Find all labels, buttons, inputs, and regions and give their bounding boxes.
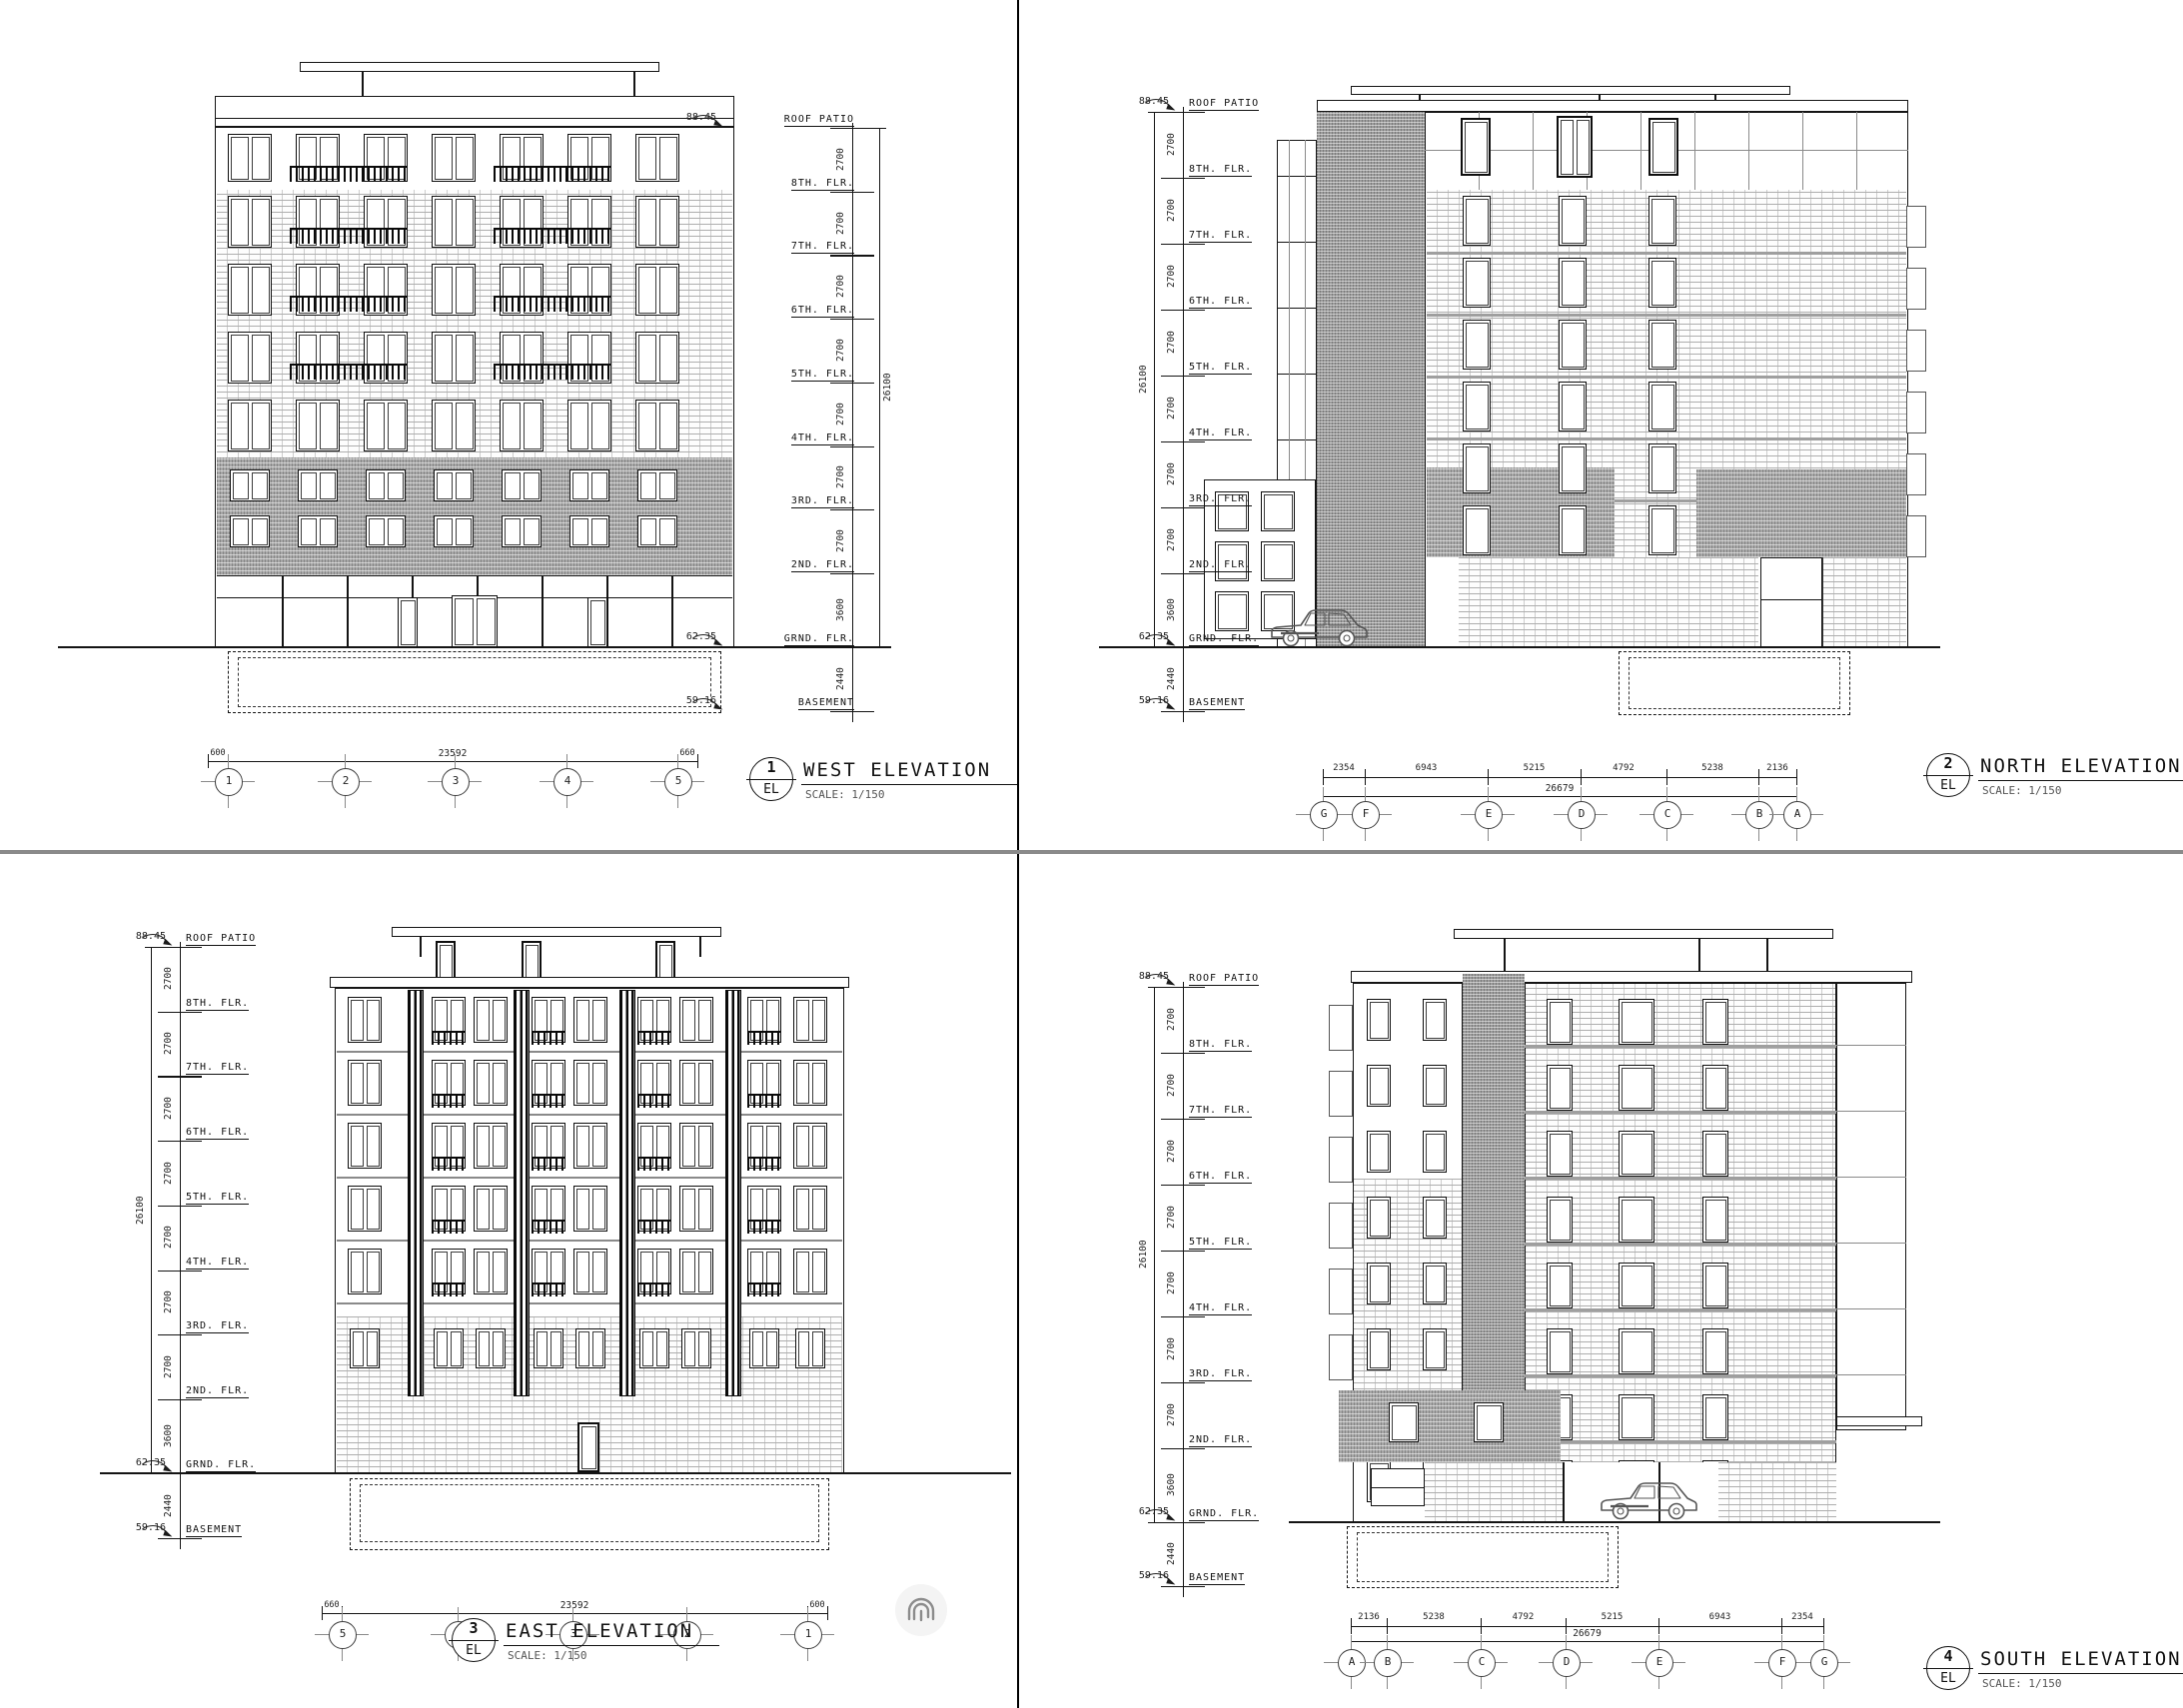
window-pane <box>796 1063 809 1104</box>
window-pane <box>682 1126 695 1167</box>
window-pane <box>1465 122 1488 173</box>
window <box>679 1249 713 1294</box>
level-tick <box>1161 711 1205 712</box>
quadrant-divider-horizontal <box>0 850 2183 854</box>
overall-level-dim: 26100 <box>882 366 895 410</box>
overall-dim-tick <box>873 128 886 129</box>
window-pane <box>493 1331 504 1366</box>
grid-bubble: 5 <box>664 768 692 796</box>
overall-dim-tick <box>1148 1522 1161 1523</box>
overall-dim: 26679 <box>1323 783 1796 794</box>
window-pane <box>493 1000 506 1041</box>
panel-joint <box>1694 112 1695 190</box>
storefront-mullion <box>542 575 544 647</box>
level-dimension: 3600 <box>835 590 848 630</box>
window-pane <box>320 472 336 499</box>
window-pane <box>576 1126 589 1167</box>
south-right-canopy <box>1836 1416 1922 1426</box>
balcony-railing <box>532 1031 565 1045</box>
overall-level-dim: 26100 <box>135 1189 148 1233</box>
window <box>635 332 679 384</box>
window-pane <box>1577 120 1590 175</box>
window <box>348 1249 382 1294</box>
window-pane <box>1466 508 1489 553</box>
window-pane <box>572 518 588 545</box>
window <box>474 1123 508 1169</box>
window <box>573 1186 607 1232</box>
window-pane <box>367 1252 380 1292</box>
door-mid-line <box>1371 1487 1425 1488</box>
window-pane <box>572 472 588 499</box>
window-pane <box>437 1331 448 1366</box>
window-pane <box>233 472 249 499</box>
window-pane <box>812 1063 825 1104</box>
grid-bubble: E <box>1645 1649 1673 1677</box>
window <box>434 515 474 547</box>
window <box>793 1123 827 1169</box>
segment-dim: 5238 <box>1666 763 1758 774</box>
view-number: 2 <box>1934 754 1962 770</box>
window-pane <box>1550 1134 1571 1175</box>
overall-dim-tick <box>873 647 886 648</box>
window <box>228 264 272 316</box>
window-pane <box>659 137 677 180</box>
window <box>573 997 607 1043</box>
canopy-post <box>1698 939 1700 971</box>
view-circle-divider <box>1923 1668 1973 1669</box>
window-pane <box>524 472 540 499</box>
window-pane <box>698 1126 711 1167</box>
slab-band <box>1525 1243 1836 1246</box>
level-label: GRND. FLR. <box>784 632 854 646</box>
dim-line <box>322 1613 827 1614</box>
elevation-drawing-sheet: ROOF PATIO8TH. FLR.7TH. FLR.6TH. FLR.5TH… <box>0 0 2183 1708</box>
window <box>1619 1197 1654 1243</box>
window-pane <box>456 403 474 449</box>
window-pane <box>1651 508 1674 553</box>
window-pane <box>1705 1002 1726 1043</box>
window <box>1423 1065 1447 1107</box>
window <box>1619 1328 1654 1374</box>
view-title: SOUTH ELEVATION <box>1978 1648 2183 1674</box>
level-dimension: 2700 <box>163 959 176 999</box>
view-number: 3 <box>460 1619 488 1635</box>
overall-dim: 26679 <box>1351 1628 1823 1639</box>
window-pane <box>252 267 270 314</box>
window-pane <box>1622 1002 1652 1043</box>
level-label: ROOF PATIO <box>784 113 854 127</box>
balcony-railing <box>532 1220 565 1234</box>
grid-bubble: B <box>1374 1649 1402 1677</box>
window <box>637 469 677 501</box>
window-pane <box>479 1331 490 1366</box>
level-dimension: 2700 <box>163 1347 176 1387</box>
window <box>1547 1131 1573 1177</box>
window-pane <box>320 518 336 545</box>
window-pane <box>505 518 521 545</box>
window-pane <box>252 472 268 499</box>
balcony-railing <box>532 1282 565 1296</box>
balcony-railing <box>432 1094 466 1108</box>
level-label: 6TH. FLR. <box>186 1126 249 1140</box>
segment-dim: 4792 <box>1481 1612 1566 1623</box>
window-pane <box>1622 1068 1652 1109</box>
balcony-line <box>1277 308 1317 309</box>
north-base-brick-right <box>1822 557 1906 647</box>
window-pane <box>493 1189 506 1230</box>
window <box>573 1123 607 1169</box>
level-dimension: 2700 <box>1166 1329 1179 1369</box>
level-tick <box>1161 112 1205 113</box>
window-pane <box>812 1000 825 1041</box>
level-label: ROOF PATIO <box>1189 97 1259 111</box>
window <box>1702 1328 1728 1374</box>
window <box>1547 1065 1573 1111</box>
window-pane <box>1622 1134 1652 1175</box>
south-side-balcony <box>1329 1334 1353 1380</box>
window <box>348 997 382 1043</box>
level-dimension: 3600 <box>163 1416 176 1456</box>
level-tick <box>158 1206 202 1207</box>
window-pane <box>638 403 656 449</box>
level-tick <box>830 573 874 574</box>
level-dimension: 2700 <box>1166 520 1179 560</box>
window-pane <box>505 472 521 499</box>
south-base-brick-right <box>1718 1462 1836 1522</box>
window-pane <box>698 1331 709 1366</box>
overall-level-dim: 26100 <box>1138 358 1151 402</box>
segment-dim: 2354 <box>1781 1612 1823 1623</box>
window-pane <box>456 335 474 382</box>
balcony-railing <box>747 1157 781 1171</box>
level-tick <box>1161 987 1205 988</box>
car-silhouette <box>1267 597 1371 649</box>
grid-bubble: E <box>1475 801 1503 829</box>
window <box>1547 1328 1573 1374</box>
window <box>573 1249 607 1294</box>
level-dimension: 2700 <box>835 140 848 180</box>
window-pane <box>353 1331 364 1366</box>
window-pane <box>592 1331 603 1366</box>
view-scale: SCALE: 1/150 <box>508 1649 727 1663</box>
window-pane <box>1550 1200 1571 1241</box>
window <box>573 1060 607 1106</box>
privacy-screen-stripes <box>514 990 530 1396</box>
level-label: 4TH. FLR. <box>186 1256 249 1270</box>
level-tick <box>830 647 874 648</box>
level-tick <box>158 1076 202 1077</box>
window <box>1367 1065 1391 1107</box>
window-pane <box>766 1331 777 1366</box>
window <box>350 1328 380 1368</box>
level-chain-line <box>1183 107 1184 722</box>
segment-dim: 2136 <box>1351 1612 1387 1623</box>
level-tick <box>830 509 874 510</box>
level-dimension: 2700 <box>163 1154 176 1194</box>
grid-bubble: 3 <box>442 768 470 796</box>
window <box>1648 196 1676 246</box>
segment-dim-line <box>1351 1626 1823 1627</box>
view-scale: SCALE: 1/150 <box>1982 784 2183 798</box>
window-pane <box>796 1126 809 1167</box>
window <box>1648 258 1676 308</box>
window-pane <box>493 1252 506 1292</box>
window <box>1702 1197 1728 1243</box>
level-label: 4TH. FLR. <box>1189 1301 1252 1315</box>
window <box>1423 1197 1447 1239</box>
window <box>1648 443 1676 493</box>
grid-bubble: 4 <box>553 768 581 796</box>
north-lower-dark-right <box>1696 469 1906 557</box>
south-side-balcony <box>1329 1137 1353 1183</box>
panel-joint <box>1748 112 1749 190</box>
window-pane <box>682 1000 695 1041</box>
balcony-railing <box>747 1031 781 1045</box>
dim-tick <box>1823 1618 1824 1634</box>
level-tick <box>1161 1382 1205 1383</box>
window-pane <box>659 403 677 449</box>
overall-dim-line <box>1154 112 1155 647</box>
balcony-railing <box>494 364 611 380</box>
level-dimension: 2700 <box>1166 125 1179 165</box>
level-dimension: 2700 <box>1166 1000 1179 1040</box>
window <box>1423 999 1447 1041</box>
level-label: 6TH. FLR. <box>1189 295 1252 309</box>
window <box>432 400 476 451</box>
window-pane <box>1562 385 1585 429</box>
level-dimension: 2440 <box>163 1486 176 1526</box>
window-pane <box>1651 261 1674 306</box>
view-tag: EL <box>757 782 785 796</box>
level-dimension: 2700 <box>1166 323 1179 363</box>
window <box>1619 1263 1654 1308</box>
window <box>1367 1328 1391 1370</box>
window-pane <box>1622 1200 1652 1241</box>
window <box>298 469 338 501</box>
window <box>1463 196 1491 246</box>
window-pane <box>524 403 542 449</box>
window <box>1702 999 1728 1045</box>
window <box>1463 505 1491 555</box>
view-scale: SCALE: 1/150 <box>1982 1677 2183 1691</box>
window-pane <box>477 1252 490 1292</box>
overall-dim-line <box>1323 796 1796 797</box>
window-pane <box>659 199 677 246</box>
level-tick <box>1161 1053 1205 1054</box>
level-label: GRND. FLR. <box>1189 632 1259 646</box>
window-pane <box>231 335 249 382</box>
end-dim-left: 660 <box>314 1600 350 1611</box>
window-pane <box>642 1331 653 1366</box>
window-pane <box>812 1331 823 1366</box>
canopy-post <box>1766 939 1768 971</box>
window-pane <box>435 199 453 246</box>
storefront-mullion <box>282 575 284 647</box>
level-tick <box>1161 1522 1205 1523</box>
window-pane <box>477 598 496 645</box>
slab-band <box>1427 376 1906 379</box>
overall-dim-line <box>1154 987 1155 1522</box>
level-tick <box>158 1473 202 1474</box>
level-tick <box>830 711 874 712</box>
level-tick <box>830 446 874 447</box>
canopy-post <box>420 937 422 957</box>
level-tick <box>158 1399 202 1400</box>
garage-door-line <box>1760 599 1822 600</box>
window-pane <box>537 1331 547 1366</box>
window <box>679 1060 713 1106</box>
window-pane <box>252 335 270 382</box>
level-dimension: 2700 <box>1166 389 1179 428</box>
slab-band <box>1525 1308 1836 1311</box>
window-pane <box>477 1126 490 1167</box>
window <box>1367 999 1391 1041</box>
dim-tick <box>1796 769 1797 785</box>
window <box>1648 320 1676 370</box>
level-label: ROOF PATIO <box>1189 972 1259 986</box>
window-pane <box>798 1331 809 1366</box>
balcony-line <box>1277 439 1317 440</box>
window <box>1619 999 1654 1045</box>
window-pane <box>698 1063 711 1104</box>
window-pane <box>367 1189 380 1230</box>
overall-dim-line <box>151 947 152 1473</box>
balcony-railing <box>494 166 611 182</box>
window <box>793 1249 827 1294</box>
level-dimension: 2700 <box>1166 191 1179 231</box>
level-chain-line <box>1183 982 1184 1597</box>
window-pane <box>592 1189 605 1230</box>
window <box>500 400 544 451</box>
balcony-railing <box>532 1157 565 1171</box>
window <box>366 469 406 501</box>
view-circle-divider <box>449 1640 499 1641</box>
window <box>398 597 418 647</box>
window-pane <box>638 267 656 314</box>
window-pane <box>351 1063 364 1104</box>
window-pane <box>455 598 474 645</box>
window <box>1547 1197 1573 1243</box>
window <box>1463 320 1491 370</box>
window-pane <box>1651 199 1674 244</box>
north-garage-door <box>1760 557 1822 647</box>
privacy-screen-stripes <box>408 990 424 1396</box>
window-pane <box>659 472 675 499</box>
window-pane <box>351 1126 364 1167</box>
level-label: 3RD. FLR. <box>186 1319 249 1333</box>
level-dimension: 2700 <box>163 1218 176 1258</box>
window-pane <box>1562 261 1585 306</box>
level-tick <box>158 1141 202 1142</box>
window <box>635 400 679 451</box>
window-pane <box>437 518 453 545</box>
window-pane <box>1562 508 1585 553</box>
south-side-balcony <box>1329 1005 1353 1051</box>
level-label: 2ND. FLR. <box>1189 558 1252 572</box>
balcony-line <box>1277 176 1317 177</box>
grid-bubble: A <box>1338 1649 1366 1677</box>
window <box>1367 1131 1391 1173</box>
panel-joint <box>1836 1308 1906 1309</box>
window <box>228 400 272 451</box>
overall-dim-line <box>879 128 880 647</box>
south-side-balcony <box>1329 1071 1353 1117</box>
level-dimension: 2700 <box>835 395 848 434</box>
level-label: 6TH. FLR. <box>1189 1170 1252 1184</box>
level-label: ROOF PATIO <box>186 932 256 946</box>
level-dimension: 2700 <box>163 1024 176 1064</box>
balcony-railing <box>637 1220 671 1234</box>
window-pane <box>252 403 270 449</box>
window <box>567 400 611 451</box>
panel-joint <box>1836 1374 1906 1375</box>
window-pane <box>1550 1331 1571 1372</box>
window-pane <box>456 267 474 314</box>
window-pane <box>320 403 338 449</box>
level-tick <box>158 1334 202 1335</box>
window-pane <box>796 1252 809 1292</box>
window-pane <box>590 600 605 645</box>
window-pane <box>1264 544 1293 579</box>
level-dimension: 2700 <box>835 331 848 371</box>
window <box>230 515 270 547</box>
window <box>1648 382 1676 431</box>
window-pane <box>1705 1068 1726 1109</box>
view-circle-divider <box>1923 775 1973 776</box>
window-pane <box>351 1189 364 1230</box>
window <box>432 332 476 384</box>
window <box>1423 1328 1447 1370</box>
window-pane <box>1705 1397 1726 1438</box>
window-pane <box>435 267 453 314</box>
storefront-mullion <box>671 575 673 647</box>
window <box>432 196 476 248</box>
window <box>230 469 270 501</box>
window <box>1702 1065 1728 1111</box>
window-pane <box>640 518 656 545</box>
grid-bubble: F <box>1768 1649 1796 1677</box>
view-title: EAST ELEVATION <box>504 1620 719 1646</box>
window <box>1389 1402 1419 1442</box>
window-pane <box>301 472 317 499</box>
window <box>1547 999 1573 1045</box>
level-tick <box>1161 1316 1205 1317</box>
window-pane <box>1562 446 1585 491</box>
window-pane <box>659 335 677 382</box>
window <box>1648 118 1678 176</box>
window-pane <box>231 403 249 449</box>
window <box>534 1328 563 1368</box>
level-tick <box>1161 1251 1205 1252</box>
window <box>793 1060 827 1106</box>
window <box>1547 1263 1573 1308</box>
level-label: 8TH. FLR. <box>1189 163 1252 177</box>
window-pane <box>682 1063 695 1104</box>
window-pane <box>369 518 385 545</box>
window-pane <box>233 518 249 545</box>
level-tick <box>158 1271 202 1272</box>
window <box>1559 258 1587 308</box>
overall-dim-tick <box>1148 112 1161 113</box>
window <box>575 1328 605 1368</box>
window-pane <box>1550 1002 1571 1043</box>
window-pane <box>550 1331 561 1366</box>
window-pane <box>591 403 609 449</box>
level-tick <box>158 1538 202 1539</box>
slab-band <box>1525 1045 1836 1048</box>
view-number: 4 <box>1934 1647 1962 1663</box>
level-label: GRND. FLR. <box>1189 1507 1259 1521</box>
